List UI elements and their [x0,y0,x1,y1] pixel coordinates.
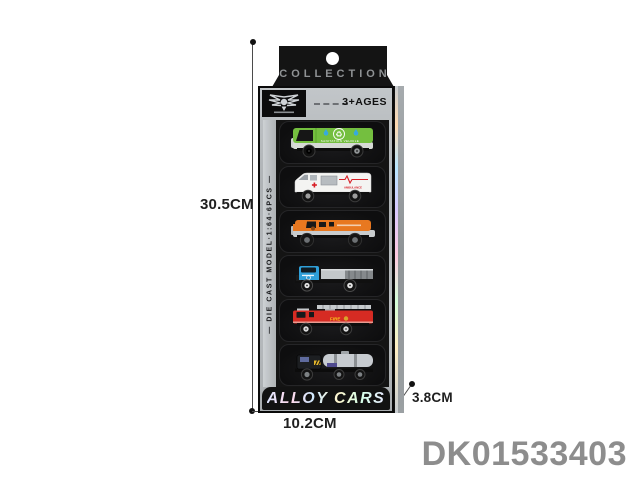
winged-badge-icon [267,93,301,115]
product-photo: 30.5CM 10.2CM 3.8CM COLLECTION 3+AGES [0,0,640,480]
vehicle-ambulance-van: AMBULANCE [283,167,383,207]
vehicle-slots: ♻ SANITATION VEHICLE [276,120,389,387]
top-band: 3+AGES [260,88,392,120]
slot-fire-truck: FIRE [279,299,386,342]
side-text: — DIE CAST MODEL·1:64·6PCS — [266,174,273,334]
vehicle-tanker-truck [283,345,383,385]
svg-text:♻: ♻ [335,130,342,139]
hazard-stripe-icon [314,360,321,365]
dimension-dot [250,39,256,45]
depth-label: 3.8CM [412,390,453,405]
brand-logo-box [262,90,306,117]
hang-hole [326,52,339,65]
width-label: 10.2CM [283,415,337,432]
vehicle-sanitation-truck: ♻ SANITATION VEHICLE [283,122,383,162]
slot-armored-truck [279,210,386,253]
age-label: 3+AGES [342,96,387,108]
product-code: DK01533403 [422,435,627,474]
display-window: — DIE CAST MODEL·1:64·6PCS — ♻ [263,120,389,387]
dimension-dot [409,381,415,387]
side-text-strip: — DIE CAST MODEL·1:64·6PCS — [263,120,276,387]
box-side-gray [398,86,404,413]
slot-flatbed-truck [279,255,386,298]
sanitation-label: SANITATION VEHICLE [320,139,358,143]
hang-tab: COLLECTION [272,46,394,87]
tab-title: COLLECTION [272,68,394,80]
slot-sanitation-truck: ♻ SANITATION VEHICLE [279,121,386,164]
vehicle-flatbed-truck [283,256,383,296]
box-front: 3+AGES — DIE CAST MODEL·1:64·6PCS — [258,86,394,413]
height-dimension-line [252,42,253,411]
bottom-band: ALLOY CARS [262,387,390,410]
slot-tanker-truck [279,344,386,387]
box-side-panel [394,86,404,413]
vehicle-fire-truck: FIRE [283,300,383,340]
slot-ambulance-van: AMBULANCE [279,166,386,209]
height-label: 30.5CM [200,196,254,213]
alloy-cars-title: ALLOY CARS [267,390,386,408]
ambulance-label: AMBULANCE [343,185,361,189]
fire-label: FIRE [330,317,340,322]
vehicle-armored-truck [283,211,383,251]
